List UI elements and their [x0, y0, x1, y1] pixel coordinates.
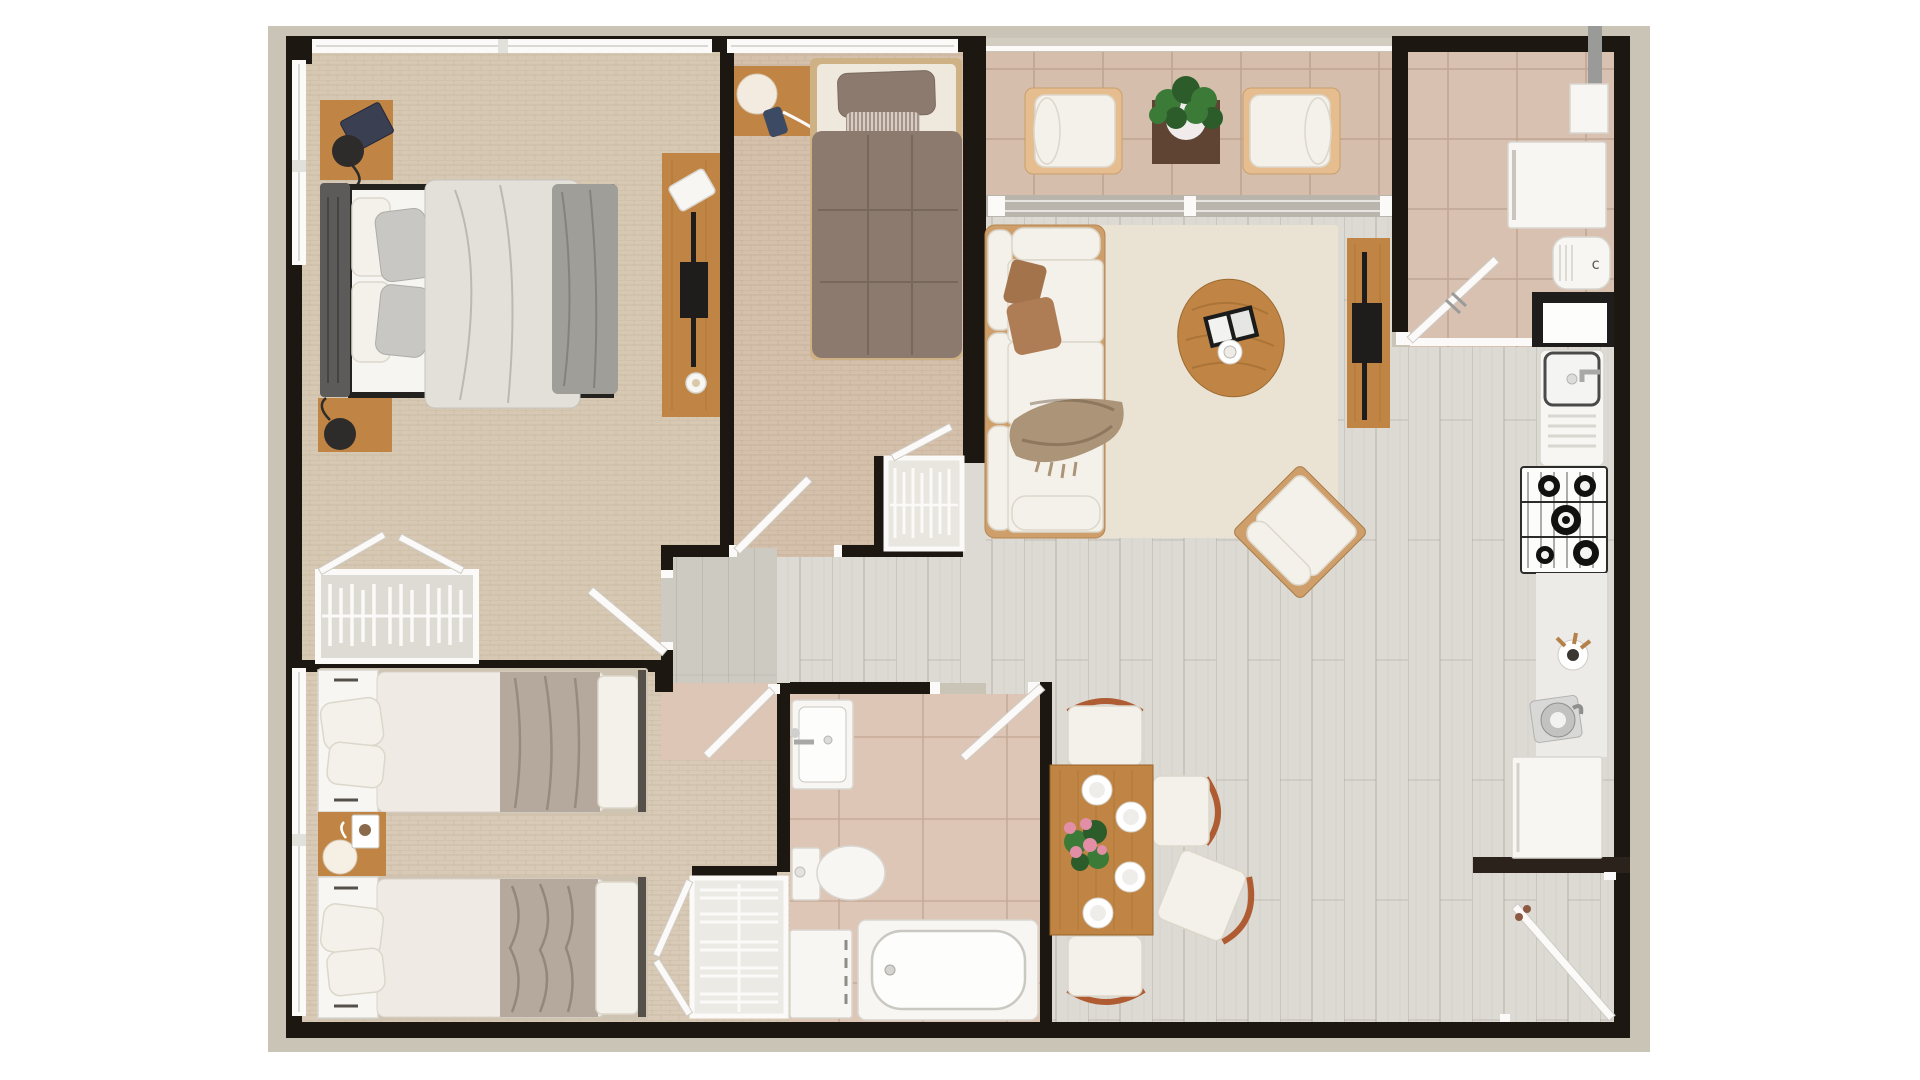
chair-top-seat	[1068, 706, 1142, 766]
balcony	[1025, 76, 1340, 174]
flush-button	[795, 867, 805, 877]
master-window-left-mullion	[292, 160, 306, 172]
kettle-lid	[1550, 712, 1566, 728]
wall-master-bed2	[720, 36, 734, 545]
basin-tap-knob	[790, 728, 800, 738]
balcony-railing-line	[986, 46, 1392, 51]
sphere-lamp-bottom	[324, 418, 356, 450]
bathtub-drain	[885, 965, 895, 975]
kitchen-door-jamb	[1396, 332, 1410, 345]
duvet-taupe	[812, 131, 962, 358]
outer-wall-bottom	[286, 1022, 1630, 1038]
pillow-silver-2	[374, 284, 431, 359]
tv-mount	[680, 262, 708, 318]
toilet-bowl	[817, 846, 885, 900]
appliance-mark: c	[1591, 255, 1600, 273]
floor-plan-canvas: c	[0, 0, 1920, 1080]
kitchen-threshold	[1410, 338, 1534, 346]
corridor-tile-texture	[661, 548, 777, 683]
dining-chair-right1	[1153, 776, 1218, 846]
bed2k-duvet-end	[596, 882, 638, 1014]
bed2k-blanket	[500, 879, 598, 1017]
kids-nightstand	[318, 812, 386, 876]
bed2k-frame-edge	[638, 877, 646, 1017]
sliding-door-mullion-2	[1380, 196, 1392, 216]
armchair-right	[1243, 88, 1340, 174]
armchair-left	[1025, 88, 1122, 174]
bed2-closet-box	[886, 458, 962, 549]
sink-drain	[1567, 374, 1577, 384]
pillow-taupe	[837, 70, 935, 117]
wall-entry-stub	[1473, 857, 1630, 873]
hall-floor-2	[963, 463, 986, 683]
master-window-mullion	[498, 39, 508, 53]
small-appliance	[1553, 237, 1610, 289]
bed2-closet-hangers	[895, 468, 949, 538]
cup-contents	[692, 379, 700, 387]
kitchen-sink	[1540, 350, 1604, 466]
bed2k-pillow-2	[326, 947, 386, 997]
twin-bed-1	[318, 668, 648, 814]
wall-bath-west	[777, 683, 790, 872]
bed2-door-jamb-east	[834, 545, 842, 557]
wall-bath-north	[790, 682, 930, 694]
front-door-handle	[1515, 913, 1523, 921]
dining-chair-top	[1068, 701, 1142, 766]
utility-box	[1570, 84, 1608, 133]
master-door-jamb-top	[661, 570, 673, 578]
front-door-handle-2	[1523, 905, 1531, 913]
sofa-bolster-pillow	[1012, 496, 1100, 530]
floor-plan-page: c	[0, 0, 1920, 1080]
wall-kitchen-west	[1392, 36, 1408, 332]
pillow-silver-1	[374, 207, 432, 283]
washbasin	[790, 700, 853, 789]
tv-console	[1347, 238, 1390, 428]
fridge	[1508, 142, 1606, 228]
bed1-duvet-end	[598, 676, 638, 808]
photo-image	[359, 824, 371, 836]
sofa-headrest	[1012, 228, 1100, 260]
bed1-pillow-2	[326, 741, 386, 789]
twin-bed-2	[318, 876, 648, 1020]
bathtub	[858, 920, 1038, 1020]
armchair-right-bolster	[1305, 98, 1331, 164]
bath-door-jamb-west	[930, 682, 940, 694]
toilet	[792, 846, 885, 900]
jar-center	[1567, 649, 1579, 661]
dining-chair-bottom	[1068, 936, 1144, 1002]
bed1-frame-edge	[638, 670, 646, 812]
hall-plank-texture	[777, 557, 986, 683]
coffee-cup	[1224, 346, 1236, 358]
sofa	[985, 225, 1124, 538]
front-door-jamb-bottom	[1500, 1014, 1510, 1022]
armchair-left-bolster	[1034, 98, 1060, 164]
sphere-lamp-top	[332, 135, 364, 167]
kids-window-left-mullion	[292, 834, 306, 846]
front-door-jamb-top	[1604, 872, 1616, 880]
washing-machine	[790, 930, 852, 1018]
wall-kids-corner	[655, 672, 673, 692]
tv-stand	[1352, 303, 1382, 363]
kettle	[1529, 695, 1582, 743]
basin-drain	[824, 736, 832, 744]
base-cabinet	[1512, 757, 1602, 858]
sliding-door-mullion	[1184, 196, 1196, 216]
gray-blanket	[552, 184, 618, 394]
gas-stove	[1521, 467, 1607, 573]
wall-bed2-living	[963, 36, 986, 463]
sphere-lamp-white	[737, 74, 777, 114]
chair-bottom-seat	[1068, 936, 1142, 996]
chair-right1-seat	[1153, 776, 1209, 846]
outer-wall-right	[1614, 36, 1630, 1038]
headboard	[320, 183, 350, 397]
sliding-door-handle	[988, 196, 1005, 216]
tall-cabinet-front	[1543, 303, 1607, 343]
